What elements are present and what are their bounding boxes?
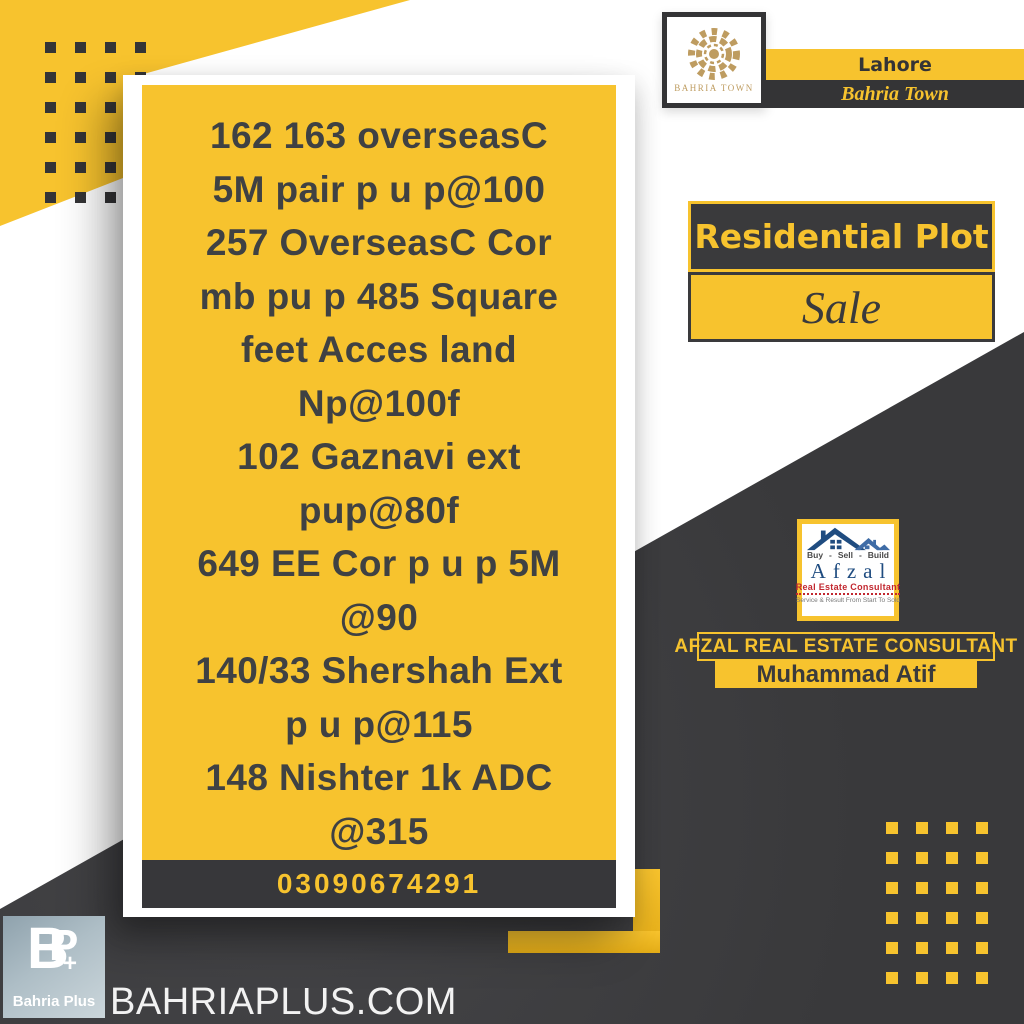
decorative-dot [916, 912, 928, 924]
card-text-line: p u p@115 [142, 698, 616, 752]
agent-company-label: AFZAL REAL ESTATE CONSULTANT [674, 636, 1017, 658]
card-text-line: 5M pair p u p@100 [142, 163, 616, 217]
decorative-dot [45, 72, 56, 83]
decorative-dot [946, 822, 958, 834]
decorative-dot [916, 942, 928, 954]
decorative-dot [105, 132, 116, 143]
city-ribbon: Lahore [766, 49, 1024, 80]
card-text-line: @315 [142, 805, 616, 859]
agent-logo-title: Afzal [804, 560, 893, 582]
houses-roof-icon [805, 524, 891, 552]
decorative-dot [916, 822, 928, 834]
decorative-dot [976, 942, 988, 954]
decorative-dot [45, 162, 56, 173]
agent-name-bar: Muhammad Atif [715, 661, 977, 688]
decorative-dot [886, 972, 898, 984]
decorative-dot [886, 852, 898, 864]
city-label: Lahore [858, 54, 932, 76]
decorative-dot [976, 972, 988, 984]
decorative-dot [75, 132, 86, 143]
decorative-dot [916, 882, 928, 894]
decorative-dot [105, 72, 116, 83]
decorative-dot [45, 132, 56, 143]
website-url: BAHRIAPLUS.COM [110, 981, 457, 1024]
agent-logo-subtitle: Real Estate Consultant [796, 582, 901, 595]
decorative-dot [886, 882, 898, 894]
decorative-dot [946, 852, 958, 864]
decorative-dot [45, 42, 56, 53]
brand-label: Bahria Town [841, 83, 949, 106]
card-text-line: 148 Nishter 1k ADC [142, 751, 616, 805]
bahria-town-logo-caption: BAHRIA TOWN [674, 83, 753, 93]
card-text-line: 257 OverseasC Cor [142, 216, 616, 270]
card-text-line: 649 EE Cor p u p 5M [142, 537, 616, 591]
dot-grid-bottom-right [886, 822, 988, 984]
card-text-line: 102 Gaznavi ext [142, 430, 616, 484]
card-text-line: mb pu p 485 Square [142, 270, 616, 324]
decorative-dot [886, 912, 898, 924]
listing-status-box: Sale [688, 272, 995, 342]
listing-card-body: 162 163 overseasC5M pair p u p@100257 Ov… [142, 85, 616, 908]
decorative-dot [946, 912, 958, 924]
monogram-plus: + [63, 952, 77, 976]
decorative-dot [886, 942, 898, 954]
card-text-line: Np@100f [142, 377, 616, 431]
bahria-plus-monogram-icon: B P + [3, 920, 105, 984]
agent-logo-box: Buy - Sell - Build Afzal Real Estate Con… [797, 519, 899, 621]
listing-status-label: Sale [802, 281, 881, 334]
decorative-dot [135, 42, 146, 53]
flyer-canvas: 162 163 overseasC5M pair p u p@100257 Ov… [0, 0, 1024, 1024]
agent-name-label: Muhammad Atif [756, 661, 935, 689]
bahria-plus-label: Bahria Plus [3, 993, 105, 1010]
decorative-dot [75, 162, 86, 173]
decorative-dot [976, 822, 988, 834]
phone-number: 03090674291 [277, 868, 481, 900]
decorative-dot [105, 102, 116, 113]
decorative-dot [946, 882, 958, 894]
decorative-dot [916, 972, 928, 984]
listing-type-box: Residential Plot [688, 201, 995, 272]
decorative-dot [75, 42, 86, 53]
decorative-dot [75, 72, 86, 83]
decorative-dot [45, 102, 56, 113]
decorative-dot [75, 102, 86, 113]
card-text-line: @90 [142, 591, 616, 645]
card-text-line: 162 163 overseasC [142, 109, 616, 163]
decorative-dot [886, 822, 898, 834]
card-text-line: pup@80f [142, 484, 616, 538]
decorative-dot [976, 912, 988, 924]
decorative-dot [976, 852, 988, 864]
listing-text: 162 163 overseasC5M pair p u p@100257 Ov… [142, 109, 616, 860]
card-text-line: feet Acces land [142, 323, 616, 377]
decorative-dot [946, 972, 958, 984]
yellow-corner-bracket-horizontal [508, 931, 660, 953]
decorative-dot [946, 942, 958, 954]
bahria-plus-logo: B P + Bahria Plus [3, 916, 105, 1018]
decorative-dot [45, 192, 56, 203]
agent-logo-tagline: Service & Result From Start To Sold [796, 597, 900, 604]
listing-card: 162 163 overseasC5M pair p u p@100257 Ov… [123, 75, 635, 917]
decorative-dot [976, 882, 988, 894]
phone-number-bar: 03090674291 [142, 860, 616, 908]
listing-type-label: Residential Plot [694, 217, 988, 256]
bahria-town-logo-box: BAHRIA TOWN [662, 12, 766, 108]
decorative-dot [75, 192, 86, 203]
brand-ribbon: Bahria Town [766, 80, 1024, 108]
card-text-line: 140/33 Shershah Ext [142, 644, 616, 698]
decorative-dot [105, 192, 116, 203]
decorative-dot [916, 852, 928, 864]
agent-company-ribbon: AFZAL REAL ESTATE CONSULTANT [697, 632, 995, 661]
decorative-dot [105, 162, 116, 173]
decorative-dot [105, 42, 116, 53]
bahria-town-ornament-icon [687, 27, 741, 81]
